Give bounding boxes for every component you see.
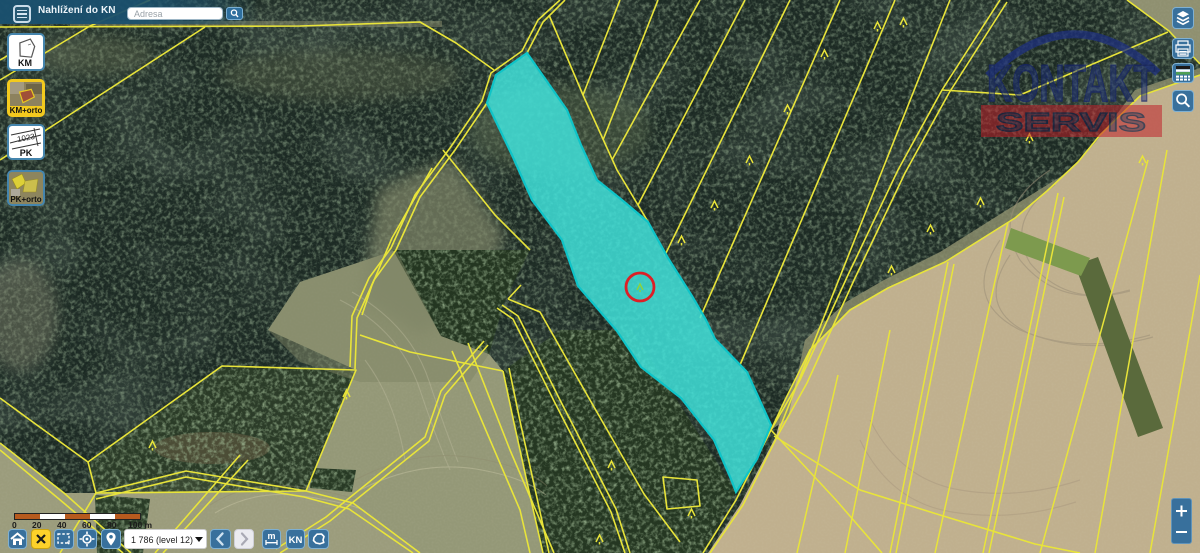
svg-text:PK: PK [20,148,33,158]
svg-text:PK+orto: PK+orto [10,195,41,204]
svg-text:KM+orto: KM+orto [10,106,42,114]
svg-text:1023: 1023 [16,132,36,144]
svg-text:m: m [267,531,275,541]
svg-text:KONTAKT: KONTAKT [987,55,1155,113]
svg-text:KM: KM [18,58,32,68]
svg-text:SERVIS: SERVIS [996,107,1146,137]
svg-text:KN: KN [289,535,303,546]
